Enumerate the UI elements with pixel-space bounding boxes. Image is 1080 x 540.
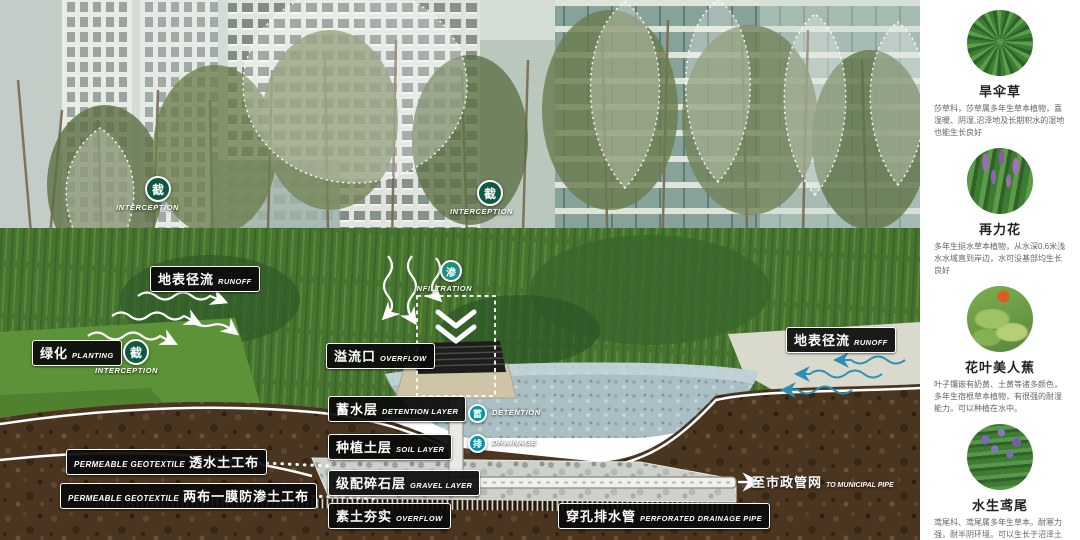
- label-geotextile-membrane: PERMEABLE GEOTEXTILE 两布一膜防渗土工布: [60, 483, 317, 509]
- label-runoff-left: 地表径流 RUNOFF: [150, 266, 260, 292]
- plant-description: 多年生挺水草本植物，从水深0.6米浅水水域直到岸边，水可没基部均生长良好: [934, 241, 1066, 277]
- detention-icon: 蓄: [468, 404, 487, 423]
- label-to-municipal: 至市政管网 TO MUNICIPAL PIPE: [752, 472, 894, 491]
- plant-entry: 花叶美人蕉 叶子镶嵌有奶黄、土黄等诸多颜色，多年生宿根草本植物，有很强的耐湿能力…: [925, 286, 1075, 415]
- interception-caption: INTERCEPTION: [95, 366, 158, 375]
- label-soil-layer: 种植土层 SOIL LAYER: [328, 434, 452, 460]
- plant-description: 莎草科，莎草属多年生草本植物，喜湿暖、阴湿,沼泽地及长期积水的湿地也能生长良好: [934, 103, 1066, 139]
- plant-name: 花叶美人蕉: [965, 357, 1035, 376]
- plant-entry: 再力花 多年生挺水草本植物，从水深0.6米浅水水域直到岸边，水可没基部均生长良好: [925, 148, 1075, 277]
- plant-name: 旱伞草: [979, 81, 1021, 100]
- label-compacted-soil: 素土夯实 OVERFLOW: [328, 503, 451, 529]
- label-planting: 绿化 PLANTING: [32, 340, 122, 366]
- label-gravel-layer: 级配碎石层 GRAVEL LAYER: [328, 470, 480, 496]
- interception-icon: 截: [145, 176, 171, 202]
- drainage-caption: DRAINAGE: [492, 438, 537, 447]
- plant-legend: 旱伞草 莎草科，莎草属多年生草本植物，喜湿暖、阴湿,沼泽地及长期积水的湿地也能生…: [920, 0, 1080, 540]
- infiltration-icon: 渗: [440, 260, 462, 282]
- interception-caption: INTERCEPTION: [116, 203, 179, 212]
- rain-garden-cross-section: 地表径流 RUNOFF 绿化 PLANTING 溢流口 OVERFLOW 蓄水层…: [0, 0, 920, 540]
- interception-icon: 截: [123, 339, 149, 365]
- plant-photo-canna: [967, 286, 1033, 352]
- plant-description: 叶子镶嵌有奶黄、土黄等诸多颜色，多年生宿根草本植物，有很强的耐湿能力。可以种植在…: [934, 379, 1066, 415]
- label-runoff-right: 地表径流 RUNOFF: [786, 327, 896, 353]
- infiltration-caption: INFILTRATION: [414, 284, 472, 293]
- label-detention-layer: 蓄水层 DETENTION LAYER: [328, 396, 466, 422]
- plant-description: 鸢尾科、鸢尾属多年生草本。耐寒力强，耐半阴环境。可以生长于沼泽土壤或浅水层中。: [934, 517, 1066, 540]
- interception-caption: INTERCEPTION: [450, 207, 513, 216]
- plant-name: 水生鸢尾: [972, 495, 1028, 514]
- detention-caption: DETENTION: [492, 408, 541, 417]
- drainage-icon: 排: [468, 434, 487, 453]
- plant-entry: 旱伞草 莎草科，莎草属多年生草本植物，喜湿暖、阴湿,沼泽地及长期积水的湿地也能生…: [925, 10, 1075, 139]
- plant-photo-umbrella-sedge: [967, 10, 1033, 76]
- plant-photo-thalia: [967, 148, 1033, 214]
- plant-name: 再力花: [979, 219, 1021, 238]
- label-overflow-inlet: 溢流口 OVERFLOW: [326, 343, 435, 369]
- rain-garden-poster: 地表径流 RUNOFF 绿化 PLANTING 溢流口 OVERFLOW 蓄水层…: [0, 0, 1080, 540]
- plant-entry: 水生鸢尾 鸢尾科、鸢尾属多年生草本。耐寒力强，耐半阴环境。可以生长于沼泽土壤或浅…: [925, 424, 1075, 540]
- label-perforated-pipe: 穿孔排水管 PERFORATED DRAINAGE PIPE: [558, 503, 770, 529]
- interception-icon: 截: [477, 180, 503, 206]
- plant-photo-water-iris: [967, 424, 1033, 490]
- label-geotextile-permeable: PERMEABLE GEOTEXTILE 透水土工布: [66, 449, 267, 475]
